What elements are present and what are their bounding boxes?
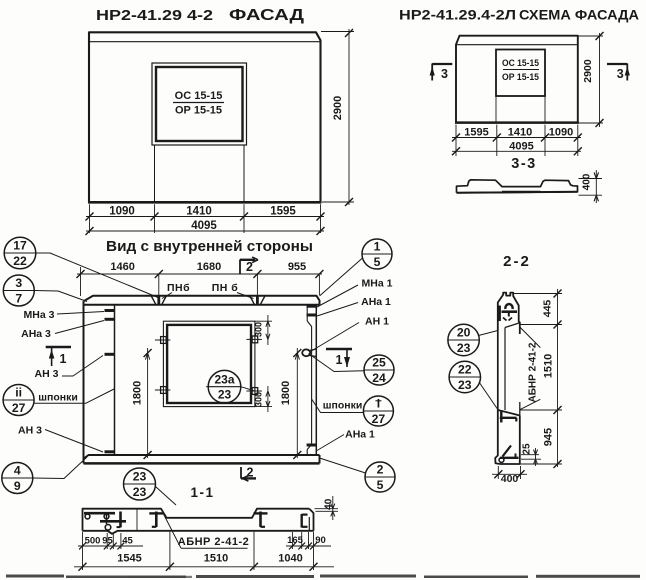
svg-text:90: 90 [315,535,326,546]
svg-text:1510: 1510 [543,354,555,378]
svg-text:АНа 1: АНа 1 [361,296,391,308]
svg-text:955: 955 [288,261,306,273]
svg-text:3: 3 [441,67,448,81]
svg-text:1: 1 [336,353,343,367]
svg-text:I: I [377,397,380,411]
svg-text:1595: 1595 [270,205,296,217]
svg-text:АН 1: АН 1 [365,316,389,328]
svg-text:5: 5 [377,478,384,492]
svg-text:НР2-41.29 4-2: НР2-41.29 4-2 [96,7,213,24]
svg-text:945: 945 [543,428,555,446]
svg-text:1800: 1800 [280,381,292,405]
svg-text:25: 25 [372,356,386,370]
svg-text:9: 9 [14,479,21,493]
svg-text:АБНР 2-41-2: АБНР 2-41-2 [528,342,539,402]
svg-text:1410: 1410 [186,205,212,217]
svg-text:АБНР 2-41-2: АБНР 2-41-2 [178,536,249,548]
svg-text:27: 27 [12,401,26,415]
svg-text:АН 3: АН 3 [18,425,42,437]
svg-text:1: 1 [60,352,67,366]
svg-text:23а: 23а [214,372,234,386]
svg-text:ФАСАД: ФАСАД [229,7,304,24]
svg-text:20: 20 [457,326,471,340]
svg-text:400: 400 [582,173,593,190]
svg-text:1545: 1545 [117,553,141,565]
svg-text:2-2: 2-2 [503,253,531,270]
svg-text:СХЕМА ФАСАДА: СХЕМА ФАСАДА [519,7,639,23]
svg-text:2900: 2900 [582,59,594,83]
svg-text:1090: 1090 [109,205,135,217]
svg-text:1800: 1800 [132,381,144,405]
svg-text:4: 4 [14,464,21,478]
svg-text:1460: 1460 [110,261,134,273]
svg-text:ОС 15-15: ОС 15-15 [502,58,540,69]
svg-text:2: 2 [377,463,384,477]
svg-text:АНа 1: АНа 1 [345,429,375,441]
svg-text:1510: 1510 [204,553,228,565]
svg-text:ПНб: ПНб [167,282,190,294]
svg-text:23: 23 [218,388,232,402]
svg-text:23: 23 [458,378,472,392]
svg-text:АНа 3: АНа 3 [21,328,51,340]
svg-text:300: 300 [254,322,264,337]
svg-text:АН 3: АН 3 [35,368,59,380]
svg-text:27: 27 [372,412,386,426]
svg-text:23: 23 [133,470,147,484]
svg-text:25: 25 [522,443,533,455]
svg-text:300: 300 [254,392,264,407]
svg-text:445: 445 [542,300,554,318]
svg-text:7: 7 [15,292,22,306]
svg-text:22: 22 [13,254,27,268]
svg-text:4095: 4095 [191,220,217,232]
svg-text:ОС 15-15: ОС 15-15 [175,90,223,102]
svg-text:40: 40 [324,498,335,510]
svg-text:Вид с внутренней стороны: Вид с внутренней стороны [106,239,313,255]
svg-text:3-3: 3-3 [511,156,536,172]
svg-text:165: 165 [287,535,304,546]
svg-text:МНа 1: МНа 1 [362,278,393,290]
svg-text:ОР 15-15: ОР 15-15 [502,72,540,83]
svg-text:3: 3 [15,276,22,290]
svg-text:шпонки: шпонки [38,392,78,404]
svg-text:23: 23 [457,341,471,355]
svg-text:1595: 1595 [464,127,488,139]
svg-text:22: 22 [458,363,472,377]
svg-text:23: 23 [133,485,147,499]
svg-text:500: 500 [85,535,101,546]
svg-text:400: 400 [501,473,519,485]
svg-text:17: 17 [13,239,27,253]
svg-text:1680: 1680 [197,261,221,273]
svg-text:1090: 1090 [549,127,573,139]
svg-text:МНа 3: МНа 3 [24,309,55,321]
svg-text:2: 2 [247,466,254,480]
svg-text:24: 24 [372,371,386,385]
svg-text:45: 45 [122,535,133,546]
svg-text:4095: 4095 [509,141,533,153]
svg-text:2: 2 [246,260,253,274]
svg-text:ii: ii [15,386,22,400]
svg-text:1: 1 [374,240,381,254]
svg-text:95: 95 [102,535,113,546]
svg-text:3: 3 [617,67,624,81]
svg-text:1410: 1410 [508,127,532,139]
svg-text:5: 5 [374,255,381,269]
svg-text:шпонки: шпонки [323,400,363,412]
svg-text:ОР 15-15: ОР 15-15 [175,105,222,117]
svg-text:1-1: 1-1 [190,485,214,500]
svg-text:ПН б: ПН б [212,282,239,294]
svg-text:НР2-41.29.4-2Л: НР2-41.29.4-2Л [399,7,516,23]
svg-text:1040: 1040 [278,553,302,565]
svg-text:2900: 2900 [332,96,344,120]
